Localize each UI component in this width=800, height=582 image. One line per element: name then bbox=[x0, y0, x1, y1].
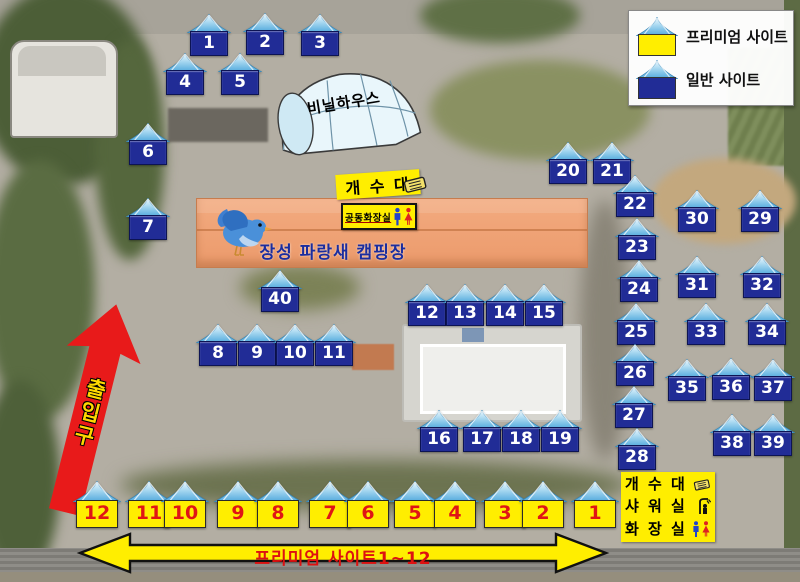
site-marker-general-18: 18 bbox=[499, 410, 543, 452]
site-number-label: 23 bbox=[618, 235, 656, 260]
site-number-label: 4 bbox=[434, 500, 476, 528]
site-marker-general-30: 30 bbox=[675, 190, 719, 232]
site-number-label: 38 bbox=[713, 431, 751, 456]
site-marker-general-15: 15 bbox=[522, 284, 566, 326]
aerial-pool-steps bbox=[462, 328, 484, 342]
facility-shower-text: 샤 워 실 bbox=[625, 499, 687, 514]
male-icon bbox=[393, 207, 402, 226]
aerial-building-roof bbox=[18, 46, 106, 76]
site-marker-premium-6: 6 bbox=[344, 481, 392, 528]
site-number-label: 9 bbox=[238, 341, 276, 366]
site-number-label: 20 bbox=[549, 159, 587, 184]
site-marker-general-22: 22 bbox=[613, 175, 657, 217]
premium-site-swatch bbox=[638, 34, 676, 56]
tent-canopy-icon bbox=[571, 481, 619, 502]
site-marker-general-10: 10 bbox=[273, 324, 317, 366]
site-marker-general-5: 5 bbox=[218, 53, 262, 95]
facility-toilet: 화 장 실 bbox=[625, 521, 711, 537]
shared-restroom-text: 공동화장실 bbox=[345, 210, 391, 224]
site-marker-general-34: 34 bbox=[745, 303, 789, 345]
site-number-label: 36 bbox=[712, 375, 750, 400]
site-number-label: 4 bbox=[166, 70, 204, 95]
restroom-icons bbox=[691, 521, 711, 537]
site-number-label: 18 bbox=[502, 427, 540, 452]
site-marker-general-23: 23 bbox=[615, 218, 659, 260]
greenhouse: 비닐하우스 bbox=[264, 55, 426, 165]
site-marker-general-17: 17 bbox=[460, 410, 504, 452]
site-marker-general-26: 26 bbox=[613, 344, 657, 386]
facility-toilet-text: 화 장 실 bbox=[625, 522, 687, 537]
facility-sink-text: 개 수 대 bbox=[625, 477, 687, 492]
site-marker-general-3: 3 bbox=[298, 14, 342, 56]
site-number-label: 8 bbox=[257, 500, 299, 528]
shared-restroom-label: 공동화장실 bbox=[341, 203, 417, 230]
premium-tent-icon bbox=[635, 17, 679, 56]
general-site-swatch bbox=[638, 77, 676, 99]
aerial-trees bbox=[420, 0, 580, 43]
site-marker-premium-2: 2 bbox=[519, 481, 567, 528]
female-icon bbox=[404, 207, 413, 226]
site-marker-general-37: 37 bbox=[751, 359, 795, 401]
site-number-label: 11 bbox=[315, 341, 353, 366]
site-number-label: 6 bbox=[347, 500, 389, 528]
site-marker-general-31: 31 bbox=[675, 256, 719, 298]
legend-premium-label: 프리미엄 사이트 bbox=[686, 26, 788, 47]
site-marker-general-19: 19 bbox=[538, 410, 582, 452]
campground-name: 장성 파랑새 캠핑장 bbox=[235, 238, 431, 263]
site-number-label: 6 bbox=[129, 140, 167, 165]
legend-item-general: 일반 사이트 bbox=[635, 60, 787, 99]
site-marker-general-4: 4 bbox=[163, 53, 207, 95]
site-number-label: 29 bbox=[741, 207, 779, 232]
site-number-label: 10 bbox=[164, 500, 206, 528]
facilities-label: 개 수 대 샤 워 실 화 장 실 bbox=[621, 472, 715, 542]
site-number-label: 19 bbox=[541, 427, 579, 452]
site-number-label: 9 bbox=[217, 500, 259, 528]
site-marker-general-33: 33 bbox=[684, 303, 728, 345]
site-number-label: 15 bbox=[525, 301, 563, 326]
site-marker-general-32: 32 bbox=[740, 256, 784, 298]
tent-canopy-icon bbox=[161, 481, 209, 502]
site-marker-general-38: 38 bbox=[710, 414, 754, 456]
legend-general-label: 일반 사이트 bbox=[686, 69, 760, 90]
facility-sink: 개 수 대 bbox=[625, 477, 711, 492]
site-number-label: 2 bbox=[246, 30, 284, 55]
site-number-label: 31 bbox=[678, 273, 716, 298]
site-number-label: 37 bbox=[754, 376, 792, 401]
tent-canopy-icon bbox=[254, 481, 302, 502]
site-number-label: 35 bbox=[668, 376, 706, 401]
site-marker-general-2: 2 bbox=[243, 13, 287, 55]
sink-icon bbox=[693, 476, 712, 492]
site-number-label: 12 bbox=[408, 301, 446, 326]
site-marker-general-35: 35 bbox=[665, 359, 709, 401]
site-number-label: 25 bbox=[617, 320, 655, 345]
site-number-label: 39 bbox=[754, 431, 792, 456]
tent-canopy-icon bbox=[73, 481, 121, 502]
site-marker-general-11: 11 bbox=[312, 324, 356, 366]
site-marker-premium-1: 1 bbox=[571, 481, 619, 528]
site-number-label: 24 bbox=[620, 277, 658, 302]
male-icon bbox=[691, 521, 701, 537]
aerial-shed bbox=[352, 344, 394, 370]
site-marker-general-40: 40 bbox=[258, 270, 302, 312]
site-marker-general-36: 36 bbox=[709, 358, 753, 400]
site-marker-general-8: 8 bbox=[196, 324, 240, 366]
site-number-label: 26 bbox=[616, 361, 654, 386]
site-number-label: 16 bbox=[420, 427, 458, 452]
site-marker-general-29: 29 bbox=[738, 190, 782, 232]
facility-shower: 샤 워 실 bbox=[625, 498, 711, 515]
site-number-label: 2 bbox=[522, 500, 564, 528]
tent-canopy-icon bbox=[344, 481, 392, 502]
site-marker-general-13: 13 bbox=[443, 284, 487, 326]
site-number-label: 13 bbox=[446, 301, 484, 326]
site-number-label: 14 bbox=[486, 301, 524, 326]
site-marker-premium-12: 12 bbox=[73, 481, 121, 528]
site-marker-general-39: 39 bbox=[751, 414, 795, 456]
site-marker-premium-4: 4 bbox=[431, 481, 479, 528]
site-number-label: 33 bbox=[687, 320, 725, 345]
site-marker-general-20: 20 bbox=[546, 142, 590, 184]
site-number-label: 7 bbox=[129, 215, 167, 240]
site-number-label: 12 bbox=[76, 500, 118, 528]
tent-canopy-icon bbox=[431, 481, 479, 502]
site-number-label: 17 bbox=[463, 427, 501, 452]
tent-canopy-icon bbox=[519, 481, 567, 502]
aerial-building bbox=[168, 108, 268, 142]
site-number-label: 22 bbox=[616, 192, 654, 217]
site-marker-general-16: 16 bbox=[417, 410, 461, 452]
site-number-label: 40 bbox=[261, 287, 299, 312]
site-number-label: 32 bbox=[743, 273, 781, 298]
site-number-label: 3 bbox=[301, 31, 339, 56]
site-marker-general-28: 28 bbox=[615, 428, 659, 470]
premium-range-label: 프리미엄 사이트1~12 bbox=[76, 544, 610, 569]
site-marker-general-25: 25 bbox=[614, 303, 658, 345]
campground-map: 장성 파랑새 캠핑장 비닐하우스 개 수 대 공동화장실 출입구 bbox=[0, 0, 800, 582]
site-number-label: 27 bbox=[615, 403, 653, 428]
general-tent-icon bbox=[635, 60, 679, 99]
site-marker-general-6: 6 bbox=[126, 123, 170, 165]
site-number-label: 5 bbox=[394, 500, 436, 528]
site-number-label: 28 bbox=[618, 445, 656, 470]
site-marker-general-27: 27 bbox=[612, 386, 656, 428]
site-marker-premium-10: 10 bbox=[161, 481, 209, 528]
site-number-label: 8 bbox=[199, 341, 237, 366]
shower-icon bbox=[696, 498, 711, 515]
site-marker-general-24: 24 bbox=[617, 260, 661, 302]
site-marker-general-14: 14 bbox=[483, 284, 527, 326]
site-number-label: 30 bbox=[678, 207, 716, 232]
legend-item-premium: 프리미엄 사이트 bbox=[635, 17, 787, 56]
site-number-label: 5 bbox=[221, 70, 259, 95]
site-number-label: 10 bbox=[276, 341, 314, 366]
site-marker-general-7: 7 bbox=[126, 198, 170, 240]
site-marker-premium-8: 8 bbox=[254, 481, 302, 528]
site-number-label: 34 bbox=[748, 320, 786, 345]
legend: 프리미엄 사이트 일반 사이트 bbox=[628, 10, 794, 106]
site-number-label: 1 bbox=[574, 500, 616, 528]
female-icon bbox=[701, 521, 711, 537]
site-marker-general-1: 1 bbox=[187, 14, 231, 56]
aerial-pool bbox=[420, 344, 566, 414]
